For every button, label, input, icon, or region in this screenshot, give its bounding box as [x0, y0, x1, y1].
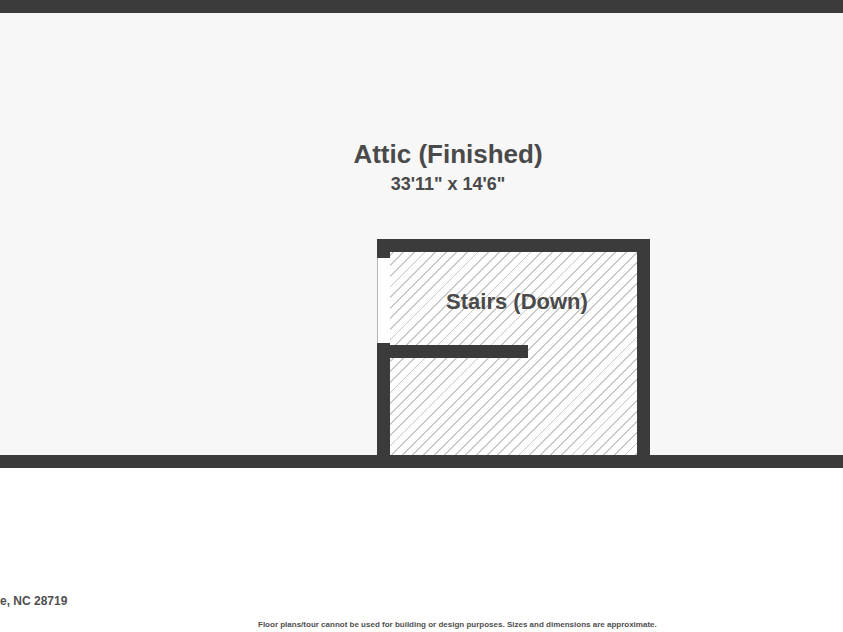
stairs-room-wall-left-upper	[377, 239, 390, 258]
top-wall-bar	[0, 0, 843, 13]
property-address: e, NC 28719	[0, 594, 67, 608]
stairs-label: Stairs (Down)	[397, 289, 637, 315]
floor-plan-page: Attic (Finished) 33'11" x 14'6" Stairs (…	[0, 0, 843, 632]
floor-plan-disclaimer: Floor plans/tour cannot be used for buil…	[258, 620, 657, 629]
bottom-wall-bar	[0, 455, 843, 468]
stairs-room-wall-left-lower	[377, 343, 390, 468]
room-title: Attic (Finished)	[298, 140, 598, 169]
stairs-room-divider-wall	[377, 345, 528, 358]
stairs-room-wall-top	[377, 239, 650, 252]
stairs-room-wall-opening	[377, 258, 390, 343]
room-dimensions: 33'11" x 14'6"	[298, 174, 598, 195]
room-title-block: Attic (Finished) 33'11" x 14'6"	[298, 140, 598, 195]
stairs-room-wall-right	[637, 239, 650, 468]
